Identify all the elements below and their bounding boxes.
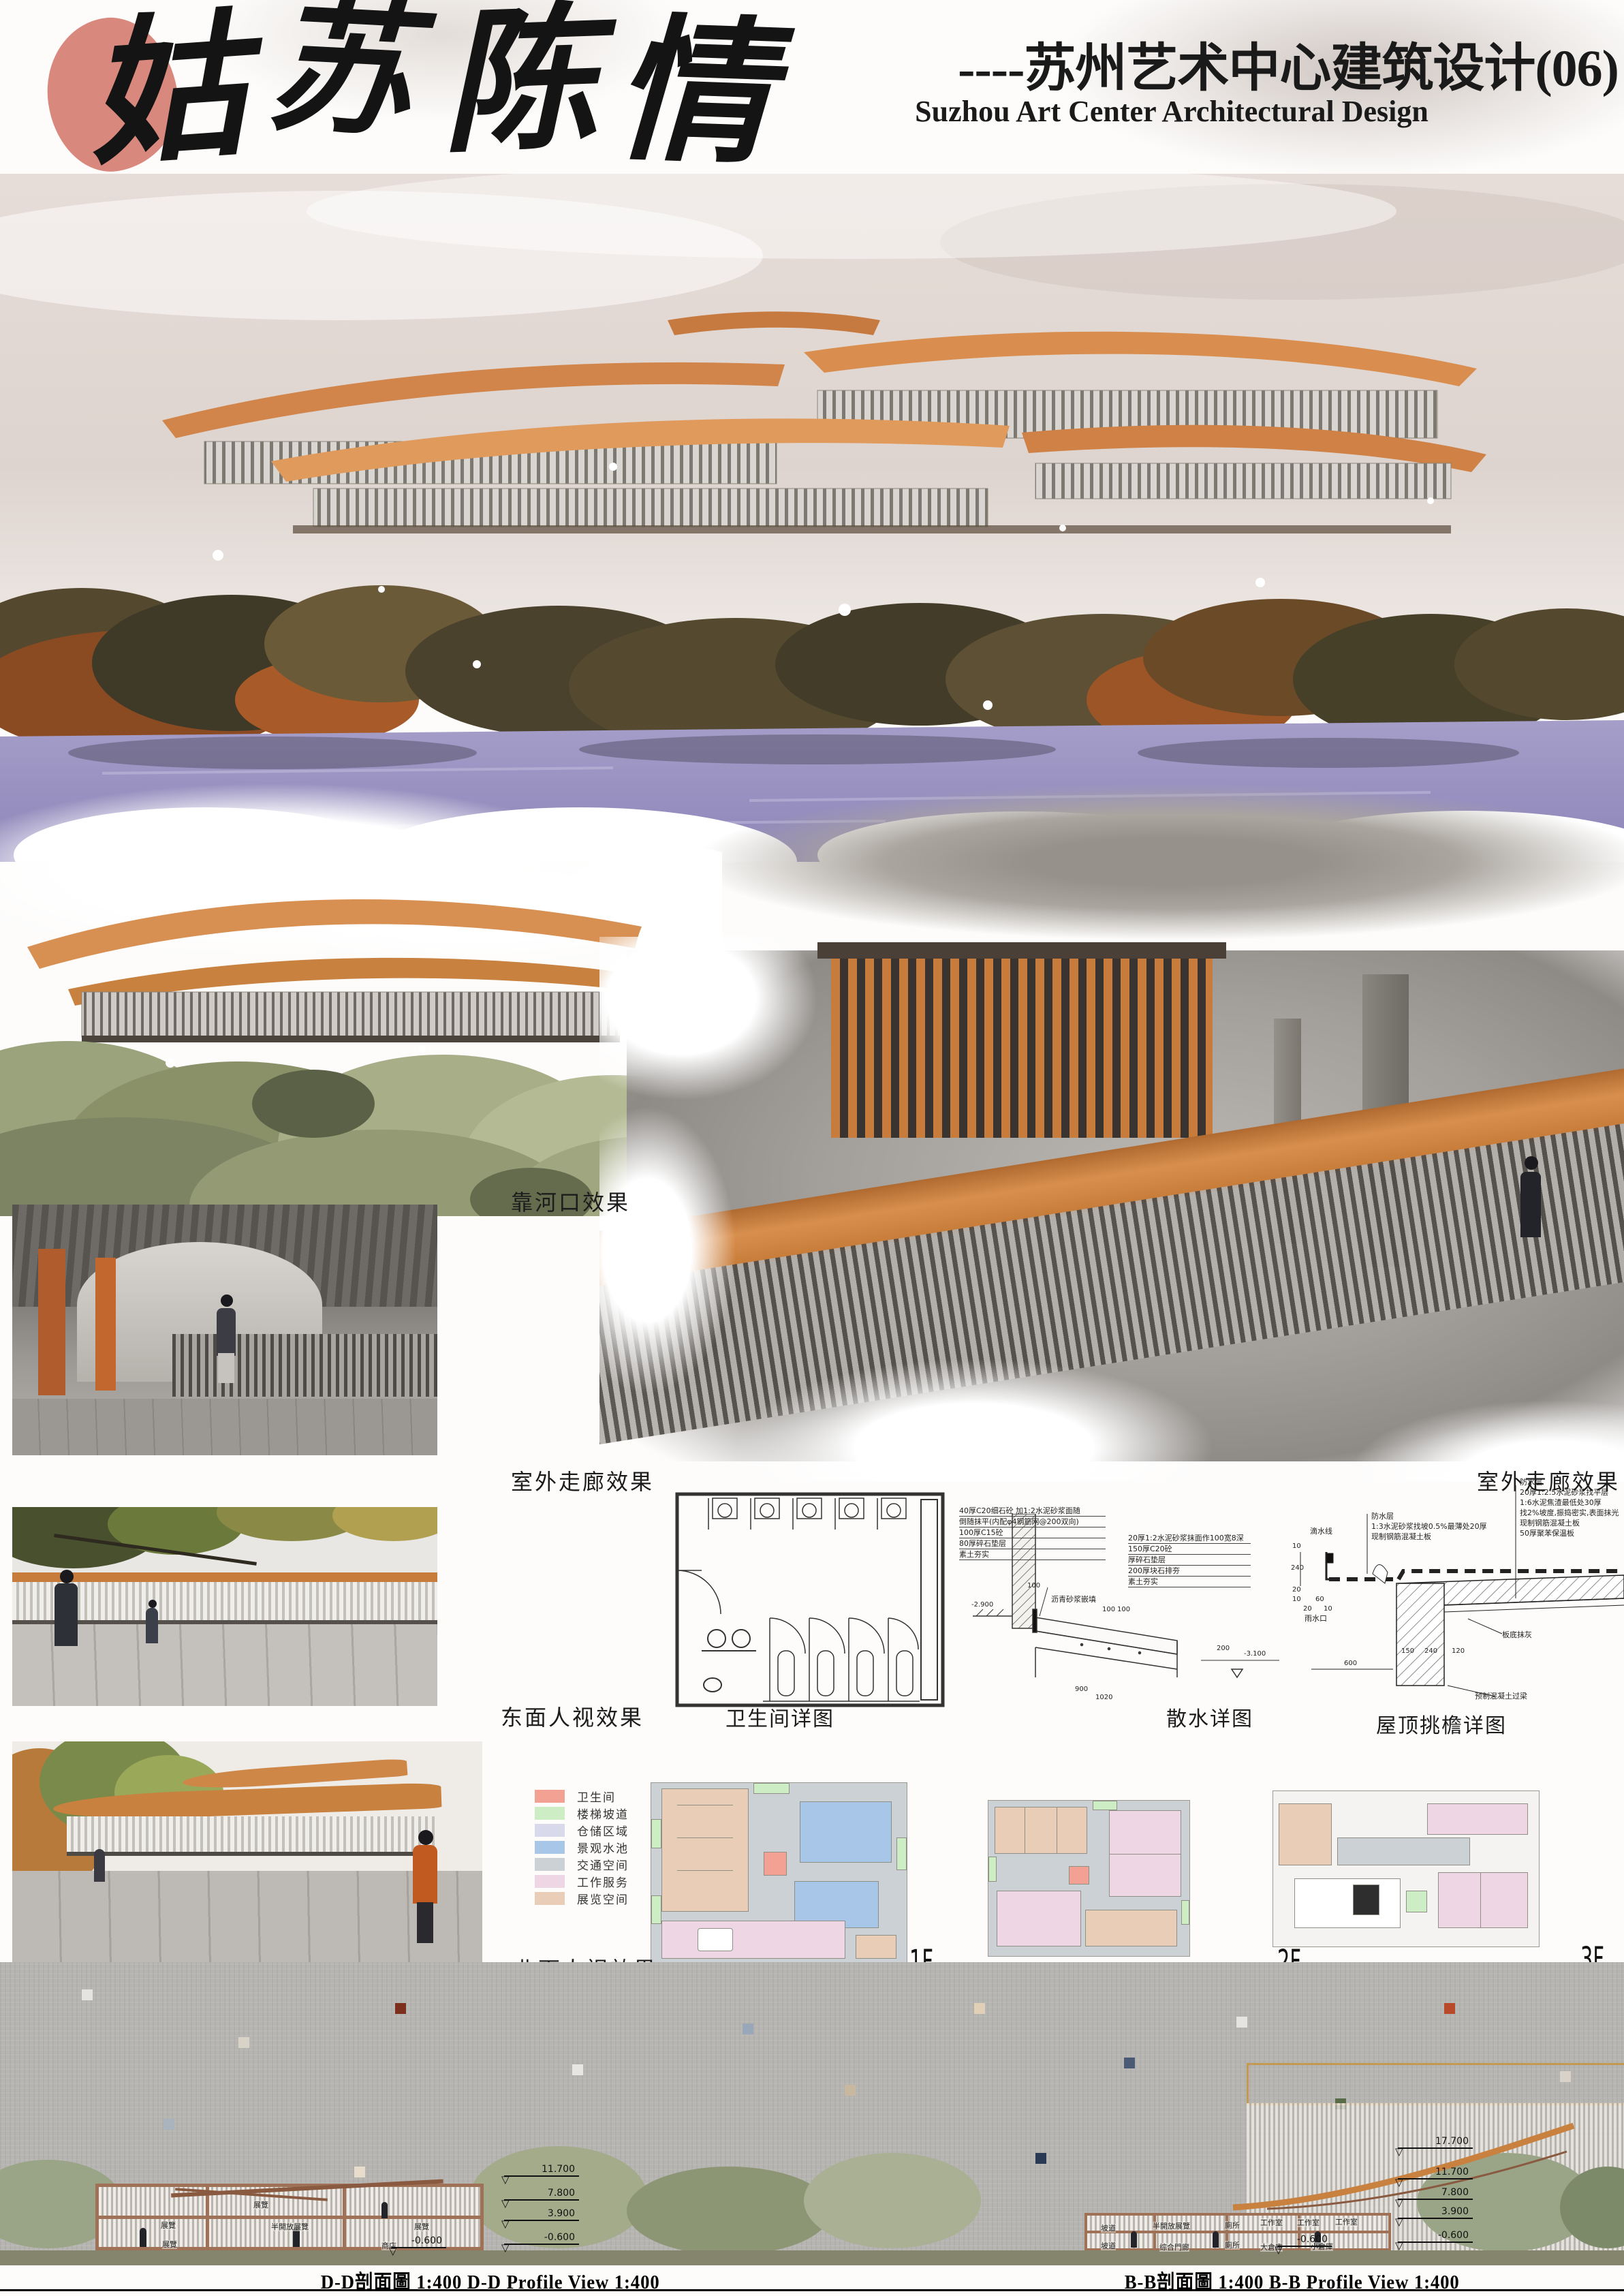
eave-notes-mid: 防水层 1:3水泥砂浆找坡0.5%最薄处20厚 现制钢筋混凝土板 [1371, 1511, 1508, 1542]
apron-notes-right: 20厚1:2水泥砂浆抹面作100宽8深 150厚C20砼 厚碎石垫层 200厚块… [1128, 1533, 1251, 1587]
elevation-marker: 17.700▽ [1398, 2147, 1473, 2149]
person-silhouette [94, 1849, 105, 1882]
calligraphy-char: 陈 [439, 0, 599, 161]
calligraphy-char: 苏 [264, 0, 417, 145]
eave-drip-label: 滴水线 [1310, 1526, 1332, 1536]
room-label: 廁所 [1225, 2221, 1240, 2230]
elevation-marker: 7.800▽ [504, 2199, 579, 2201]
elevation-marker: 11.700▽ [1398, 2178, 1473, 2179]
room-label: 展覽 [162, 2240, 177, 2249]
apron-bitumen-label: 沥青砂浆嵌填 [1051, 1594, 1096, 1604]
dimension: 10 [1292, 1596, 1301, 1603]
dimension: 240 [1424, 1647, 1437, 1655]
elevation-marker: -0.600▽ [504, 2244, 579, 2245]
label-outdoor-corridor-left: 室外走廊效果 [511, 1465, 654, 1496]
room-label: 工作室 [1335, 2218, 1358, 2227]
pavilion-louvers [831, 954, 1213, 1138]
legend-label: 楼梯坡道 [577, 1805, 629, 1822]
room-label: 工作室 [1297, 2218, 1319, 2227]
legend-label: 仓储区域 [577, 1822, 629, 1839]
apron-detail-drawing: 40厚C20细石砼 加1:2水泥砂浆面随 倒随抹平(内配φ4钢筋网@200双向)… [959, 1514, 1293, 1698]
dimension: 120 [1452, 1647, 1465, 1655]
tree [804, 2153, 981, 2248]
room-label: 工作室 [1260, 2218, 1283, 2227]
room-label: 半開放展覽 [1153, 2222, 1190, 2231]
elevation-value: -3.100 [1244, 1650, 1266, 1658]
legend-label: 景观水池 [577, 1839, 629, 1856]
caption-toilet-detail: 卫生间详图 [725, 1702, 834, 1732]
person-silhouette [54, 1583, 78, 1646]
dimension: 20 [1303, 1605, 1312, 1613]
mosaic-frieze-wall [1247, 2063, 1624, 2105]
person-silhouette [1520, 1172, 1541, 1237]
elevation-marker: 3.900▽ [504, 2220, 579, 2221]
legend-swatch [535, 1875, 565, 1888]
room-label: 半開放展覽 [271, 2222, 309, 2231]
eave-soffit-label: 板底抹灰 [1502, 1630, 1532, 1640]
eave-lintel-label: 预制混凝土过梁 [1475, 1691, 1527, 1701]
dimension: 100 [1027, 1582, 1040, 1589]
legend-label: 工作服务 [577, 1873, 629, 1890]
dimension: 20 [1292, 1586, 1301, 1594]
mosaic-gray-band [0, 1962, 1624, 2251]
apron-notes-left: 40厚C20细石砼 加1:2水泥砂浆面随 倒随抹平(内配φ4钢筋网@200双向)… [959, 1506, 1106, 1560]
hero-render-river-view [0, 174, 1624, 862]
room-label: 廁所 [1225, 2241, 1240, 2250]
presentation-board: 姑 苏 陈 情 ----苏州艺术中心建筑设计(06) Suzhou Art Ce… [0, 0, 1624, 2296]
elevation-marker: -0.600▽ [1277, 2246, 1332, 2247]
person-silhouette [217, 1308, 236, 1356]
bottom-rule [0, 2289, 1624, 2291]
caption-eave-detail: 屋顶挑檐详图 [1376, 1709, 1507, 1739]
render-outdoor-corridor-large [599, 937, 1624, 1482]
dimension: 10 [1292, 1542, 1301, 1550]
tree [627, 2167, 831, 2255]
paving [12, 1399, 437, 1455]
room-label: 展覽 [414, 2222, 429, 2231]
calligraphy-char: 姑 [82, 5, 251, 174]
legend-label: 卫生间 [577, 1788, 616, 1805]
legend-swatch [535, 1858, 565, 1871]
section-bb-roof-curve [1226, 2119, 1580, 2214]
label-east-view: 东面人视效果 [501, 1701, 644, 1732]
eave-notes-right: 防水层 20厚1:2.5水泥砂浆找平层 1:6水泥焦渣最低处30厚 找2%坡度,… [1520, 1477, 1623, 1538]
dimension: 150 [1401, 1647, 1414, 1655]
elevation-value: -2.900 [971, 1601, 993, 1609]
building-band [12, 1572, 437, 1582]
floor-plan-3f [1272, 1790, 1540, 1947]
dimension: 60 [1315, 1596, 1324, 1603]
photo-north-view [12, 1741, 482, 1968]
dimension: 240 [1291, 1564, 1304, 1572]
label-river-mouth-view: 靠河口效果 [511, 1185, 630, 1217]
dimension: 10 [1324, 1605, 1332, 1613]
subtitle-english: Suzhou Art Center Architectural Design [743, 94, 1601, 129]
legend-swatch [535, 1824, 565, 1837]
room-label: 展覽 [161, 2221, 176, 2230]
legend-label: 交通空间 [577, 1856, 629, 1873]
legend-swatch [535, 1807, 565, 1820]
legend-swatch [535, 1790, 565, 1803]
photo-east-view [12, 1507, 437, 1706]
dimension: 900 [1075, 1686, 1088, 1693]
timber-column [38, 1249, 65, 1395]
caption-apron-detail: 散水详图 [1166, 1702, 1253, 1732]
plaza-paving [12, 1871, 482, 1968]
elevation-marker: -0.600▽ [392, 2247, 446, 2248]
dimension: 100 [1117, 1606, 1130, 1613]
dimension: 100 [1102, 1606, 1115, 1613]
legend-swatch [535, 1892, 565, 1905]
room-label: 综合門廊 [1159, 2243, 1189, 2252]
room-label: 展覽 [253, 2201, 268, 2209]
elevation-marker: 11.700▽ [504, 2175, 579, 2177]
floor-plan-2f [988, 1800, 1190, 1957]
room-label: 坡道 [1101, 2224, 1116, 2233]
legend-swatch [535, 1841, 565, 1854]
person-silhouette [146, 1608, 158, 1643]
subtitle-chinese: ----苏州艺术中心建筑设计(06) [729, 26, 1619, 101]
timber-column [95, 1258, 116, 1391]
dimension: 600 [1344, 1660, 1357, 1667]
legend-label: 展览空间 [577, 1890, 629, 1907]
eave-gutter-label: 雨水口 [1305, 1613, 1327, 1624]
ground-strip [0, 2250, 1624, 2265]
elevation-marker: 3.900▽ [1398, 2218, 1473, 2219]
gray-ink-wash [695, 784, 1624, 940]
photo-outdoor-corridor-view [12, 1205, 437, 1455]
floor-plan-1f [651, 1782, 907, 1965]
elevation-marker: 7.800▽ [1398, 2199, 1473, 2200]
person-orange-coat [413, 1845, 437, 1904]
dimension: 1020 [1095, 1694, 1112, 1701]
elevation-marker: -0.600▽ [1398, 2241, 1473, 2243]
dimension: 200 [1217, 1645, 1230, 1652]
balustrade-slats [172, 1334, 437, 1397]
eave-detail-drawing: 滴水线 防水层 1:3水泥砂浆找坡0.5%最薄处20厚 现制钢筋混凝土板 防水层… [1291, 1472, 1624, 1703]
toilet-plan-drawing [668, 1489, 954, 1713]
room-label: 坡道 [1101, 2241, 1116, 2250]
